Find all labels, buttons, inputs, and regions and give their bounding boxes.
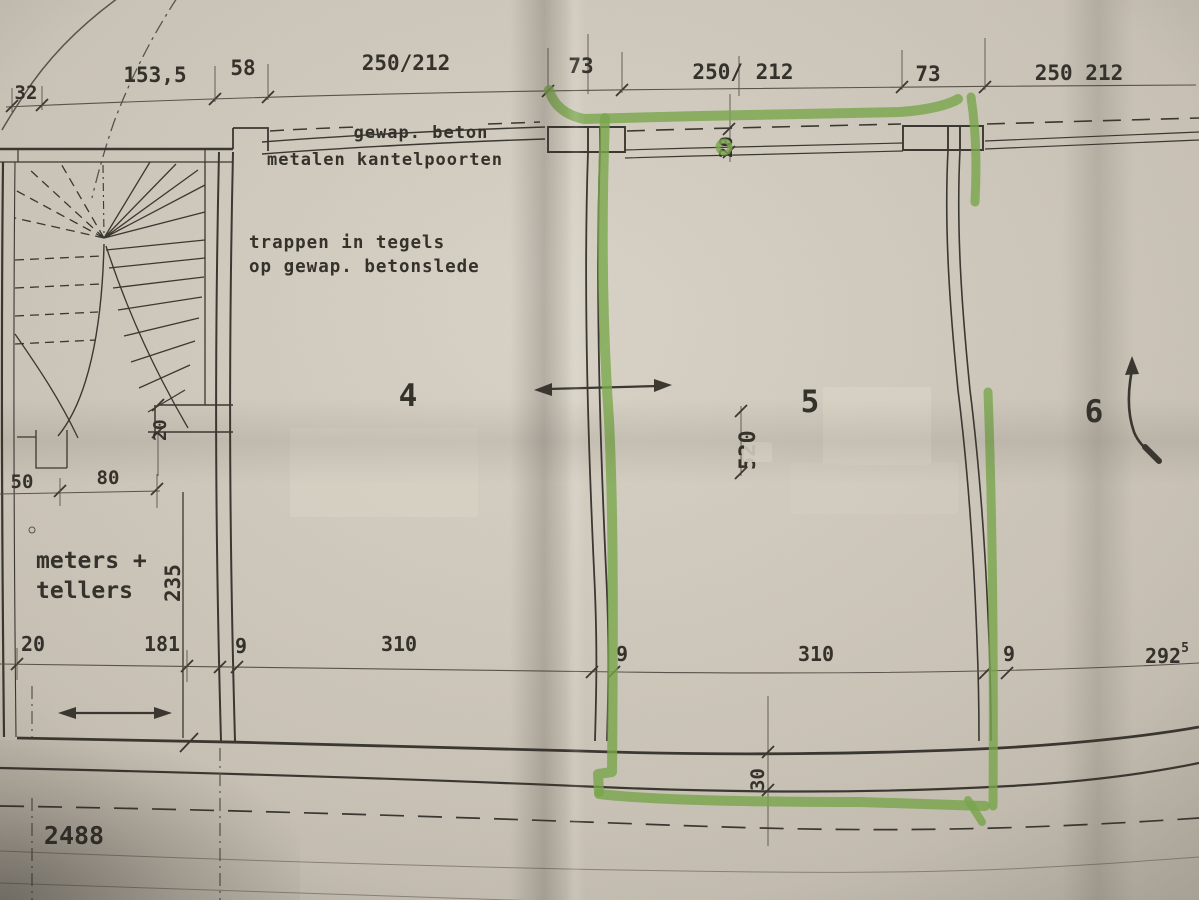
floor-plan-photo: 32 153,5 58 250/212 73 250/ 212 73 250 2… (0, 0, 1199, 900)
floor-plan-drawing: 32 153,5 58 250/212 73 250/ 212 73 250 2… (0, 0, 1199, 900)
vignette (0, 0, 1199, 900)
photo-shading (0, 0, 1199, 900)
